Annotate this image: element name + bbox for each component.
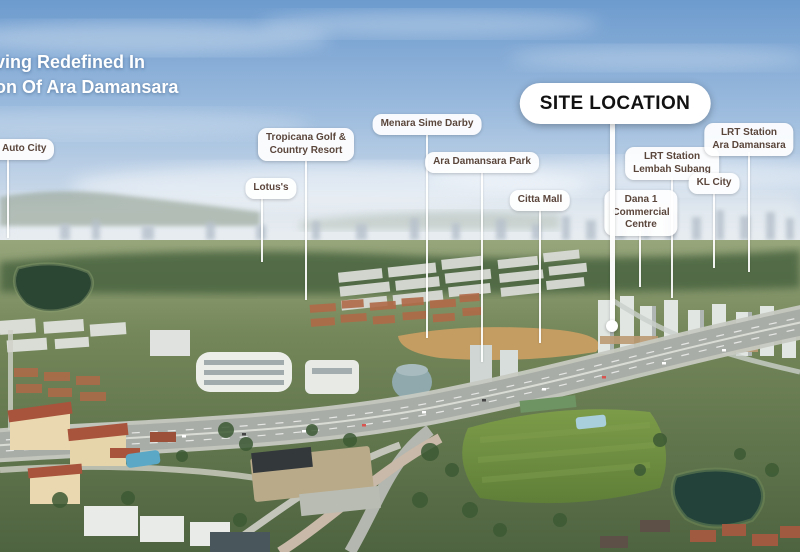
brochure-image: ving Redefined In on Of Ara Damansara y … (0, 0, 800, 552)
leader-line-ara-damansara-park (481, 172, 483, 362)
site-location-dot (606, 320, 618, 332)
leader-line-kl-city (713, 193, 715, 268)
map-label-ara-damansara-park: Ara Damansara Park (425, 152, 539, 173)
map-label-text: KL City (697, 177, 732, 190)
leader-line-lrt-station-ara-damansara (748, 152, 750, 272)
map-label-auto-city: y Auto City (0, 139, 54, 160)
map-label-text: Citta Mall (518, 194, 562, 207)
leader-line-citta-mall (539, 210, 541, 343)
map-label-text: Tropicana Golf & (266, 132, 346, 145)
leader-line-auto-city (7, 160, 9, 238)
map-label-text: Menara Sime Darby (381, 118, 474, 131)
map-label-text: LRT Station (633, 151, 711, 164)
leader-line-dana-1-commercial-centre (639, 231, 641, 287)
map-label-text: Ara Damansara Park (433, 156, 531, 169)
map-label-text: LRT Station (712, 127, 785, 140)
leader-line-lotus (261, 197, 263, 262)
leader-line-tropicana-golf-country-resort (305, 161, 307, 300)
map-label-menara-sime-darby: Menara Sime Darby (373, 114, 482, 135)
site-location-leader-line (610, 120, 615, 322)
map-label-text: Ara Damansara (712, 140, 785, 153)
site-location-pill: SITE LOCATION (520, 83, 711, 124)
map-label-dana-1-commercial-centre: Dana 1CommercialCentre (604, 190, 677, 236)
map-label-text: Centre (612, 219, 669, 232)
map-label-kl-city: KL City (689, 173, 740, 194)
map-label-text: y Auto City (0, 143, 46, 156)
map-label-text: Lotus's (253, 182, 288, 195)
map-label-tropicana-golf-country-resort: Tropicana Golf &Country Resort (258, 128, 354, 161)
map-label-text: Country Resort (266, 145, 346, 158)
map-label-text: Dana 1 (612, 194, 669, 207)
map-label-citta-mall: Citta Mall (510, 190, 570, 211)
map-label-lotus: Lotus's (245, 178, 296, 199)
map-label-text: Commercial (612, 207, 669, 220)
map-label-lrt-station-ara-damansara: LRT StationAra Damansara (704, 123, 793, 156)
